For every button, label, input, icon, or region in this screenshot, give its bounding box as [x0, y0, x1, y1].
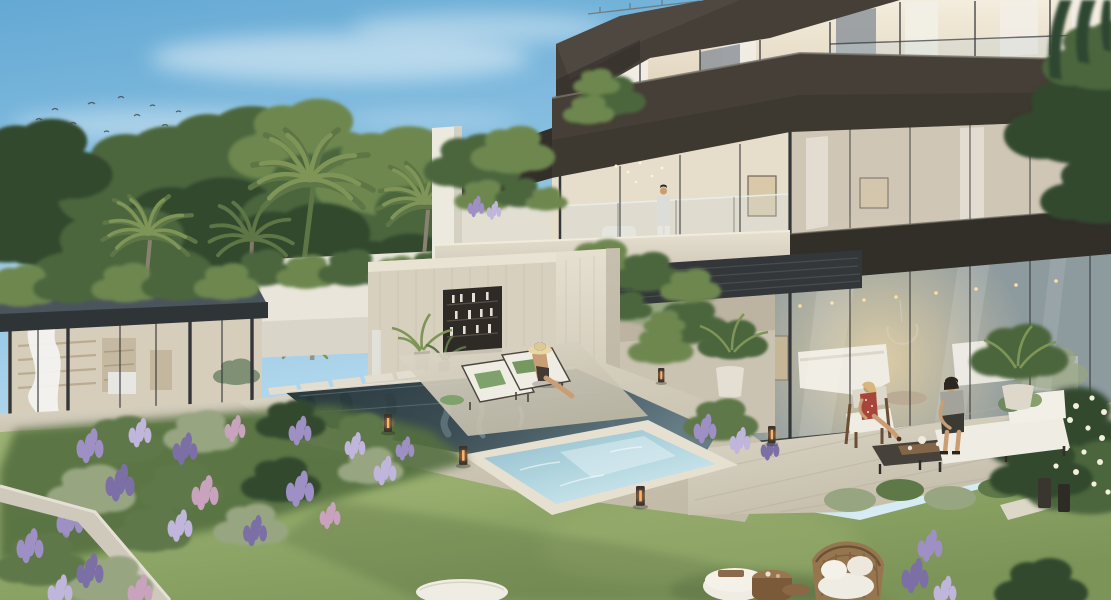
display-niche	[443, 286, 502, 356]
rattan-armchair	[812, 541, 884, 600]
villa-rendering	[0, 0, 1111, 600]
rendered-scene	[0, 0, 1111, 600]
garden-pavilion	[0, 258, 268, 434]
